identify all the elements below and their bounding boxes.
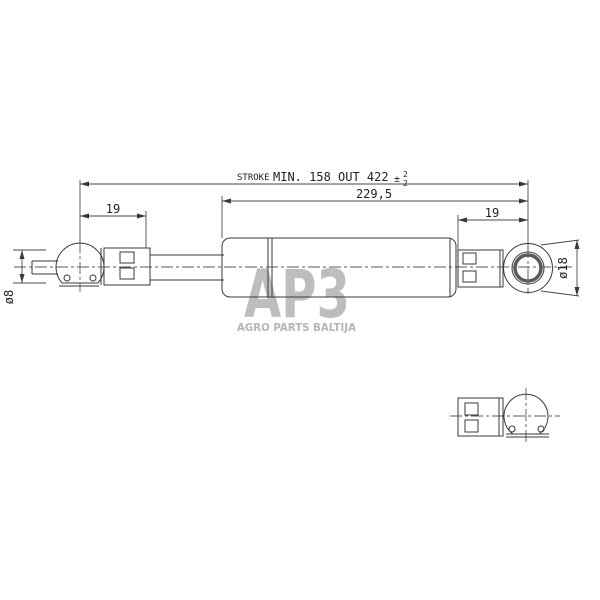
mounting-hole-lower	[463, 271, 476, 282]
arrow-up	[20, 250, 25, 259]
arrow-left	[458, 218, 467, 223]
stroke-out-label: OUT 422	[338, 170, 389, 184]
left-offset-label: 19	[106, 202, 120, 216]
tolerance-upper: 2	[403, 170, 408, 179]
tolerance-sign: ±	[394, 174, 400, 185]
right-diameter-label: ø18	[556, 257, 570, 279]
arrow-right	[519, 199, 528, 204]
arrow-down	[20, 274, 25, 283]
right-connector-block	[458, 250, 503, 287]
arrow-left	[80, 214, 89, 219]
watermark: AP3 AGRO PARTS BALTIJA	[237, 256, 356, 334]
technical-drawing-page: AP3 AGRO PARTS BALTIJA	[0, 0, 600, 600]
left-diameter-label: ø8	[2, 290, 16, 304]
gas-strut-technical-drawing: AP3 AGRO PARTS BALTIJA	[0, 0, 600, 600]
detail-hole-lower	[465, 420, 478, 432]
ball-socket-end	[32, 241, 104, 292]
detail-hole-upper	[465, 403, 478, 415]
rivet-hole-right	[90, 275, 96, 281]
tolerance-lower: 2	[403, 179, 408, 188]
watermark-caption: AGRO PARTS BALTIJA	[237, 321, 356, 334]
stroke-prefix-label: STROKE	[237, 173, 270, 183]
mounting-hole-upper	[463, 253, 476, 264]
detail-rivet-hole-left	[509, 426, 515, 432]
piston-rod	[150, 255, 224, 280]
end-fitting-detail-view	[450, 388, 560, 444]
dimension-eye-diameter: ø18	[541, 240, 580, 296]
arrow-left	[80, 182, 89, 187]
dimension-rod-diameter: ø8	[2, 250, 46, 304]
mounting-hole-upper	[120, 252, 134, 263]
dimension-left-offset: 19	[80, 202, 146, 248]
extension-line-top	[541, 240, 579, 245]
arrow-up	[575, 240, 580, 249]
left-connector-block	[101, 248, 150, 285]
arrow-down	[575, 287, 580, 296]
right-offset-label: 19	[485, 206, 499, 220]
arrow-right	[519, 218, 528, 223]
arrow-right	[137, 214, 146, 219]
total-length-label: 229,5	[356, 187, 392, 201]
detail-rivet-hole-right	[538, 426, 544, 432]
arrow-right	[519, 182, 528, 187]
arrow-left	[222, 199, 231, 204]
mounting-hole-lower	[120, 268, 134, 279]
stroke-min-label: MIN. 158	[273, 170, 331, 184]
block-body	[458, 250, 503, 287]
dimension-total-length: 229,5	[222, 187, 528, 238]
rivet-hole-left	[64, 275, 70, 281]
dimension-right-offset: 19	[458, 206, 528, 250]
dimension-stroke: STROKE MIN. 158 OUT 422 ± 2 2	[80, 170, 528, 252]
extension-line-bottom	[541, 291, 579, 296]
